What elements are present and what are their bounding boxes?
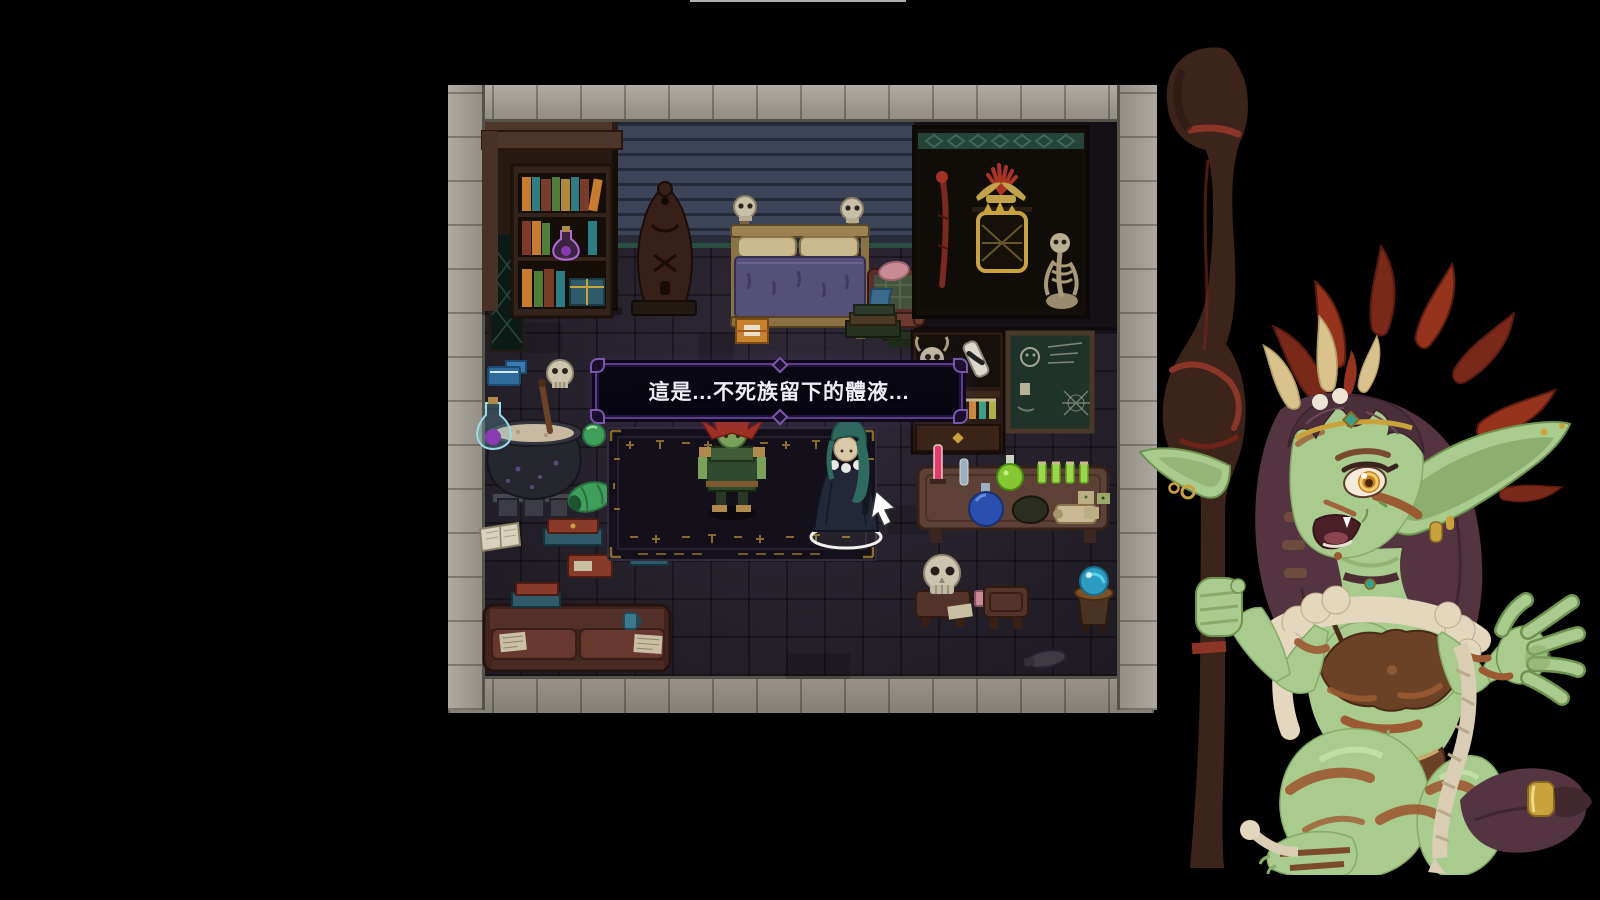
dialogue-box[interactable]: 這是...不死族留下的體液... — [595, 363, 963, 419]
window-top-edge-line — [690, 0, 906, 2]
book-stack-b — [568, 555, 612, 577]
stool — [984, 587, 1028, 629]
books-on-couch — [512, 583, 560, 607]
game-room: 這是...不死族留下的體液... — [448, 85, 1154, 710]
open-book — [480, 523, 520, 551]
blue-book — [488, 361, 526, 385]
blackboard — [1008, 333, 1092, 431]
book-stack-a — [544, 519, 602, 545]
center-book-stack — [846, 305, 900, 337]
goblin-shaman-portrait — [1130, 30, 1600, 875]
crystal-orb — [1075, 567, 1113, 633]
dialog-ornament — [953, 409, 968, 424]
floor-skull — [547, 360, 573, 388]
dialog-ornament — [590, 409, 605, 424]
display-cabinet — [914, 127, 1088, 317]
lying-bottle — [1023, 648, 1067, 671]
dialog-ornament — [953, 358, 968, 373]
dialog-ornament — [590, 358, 605, 373]
couch — [484, 583, 670, 671]
game-screen: 這是...不死族留下的體液... — [0, 0, 1600, 900]
herbs — [1013, 496, 1048, 523]
gold-mask — [978, 201, 1026, 271]
grey-tube — [960, 459, 968, 485]
potion-bottle — [477, 397, 511, 449]
small-chest — [570, 279, 604, 305]
orange-crate — [736, 319, 768, 343]
totem-statue — [632, 182, 696, 315]
green-flask — [997, 455, 1023, 490]
bed — [731, 196, 869, 339]
